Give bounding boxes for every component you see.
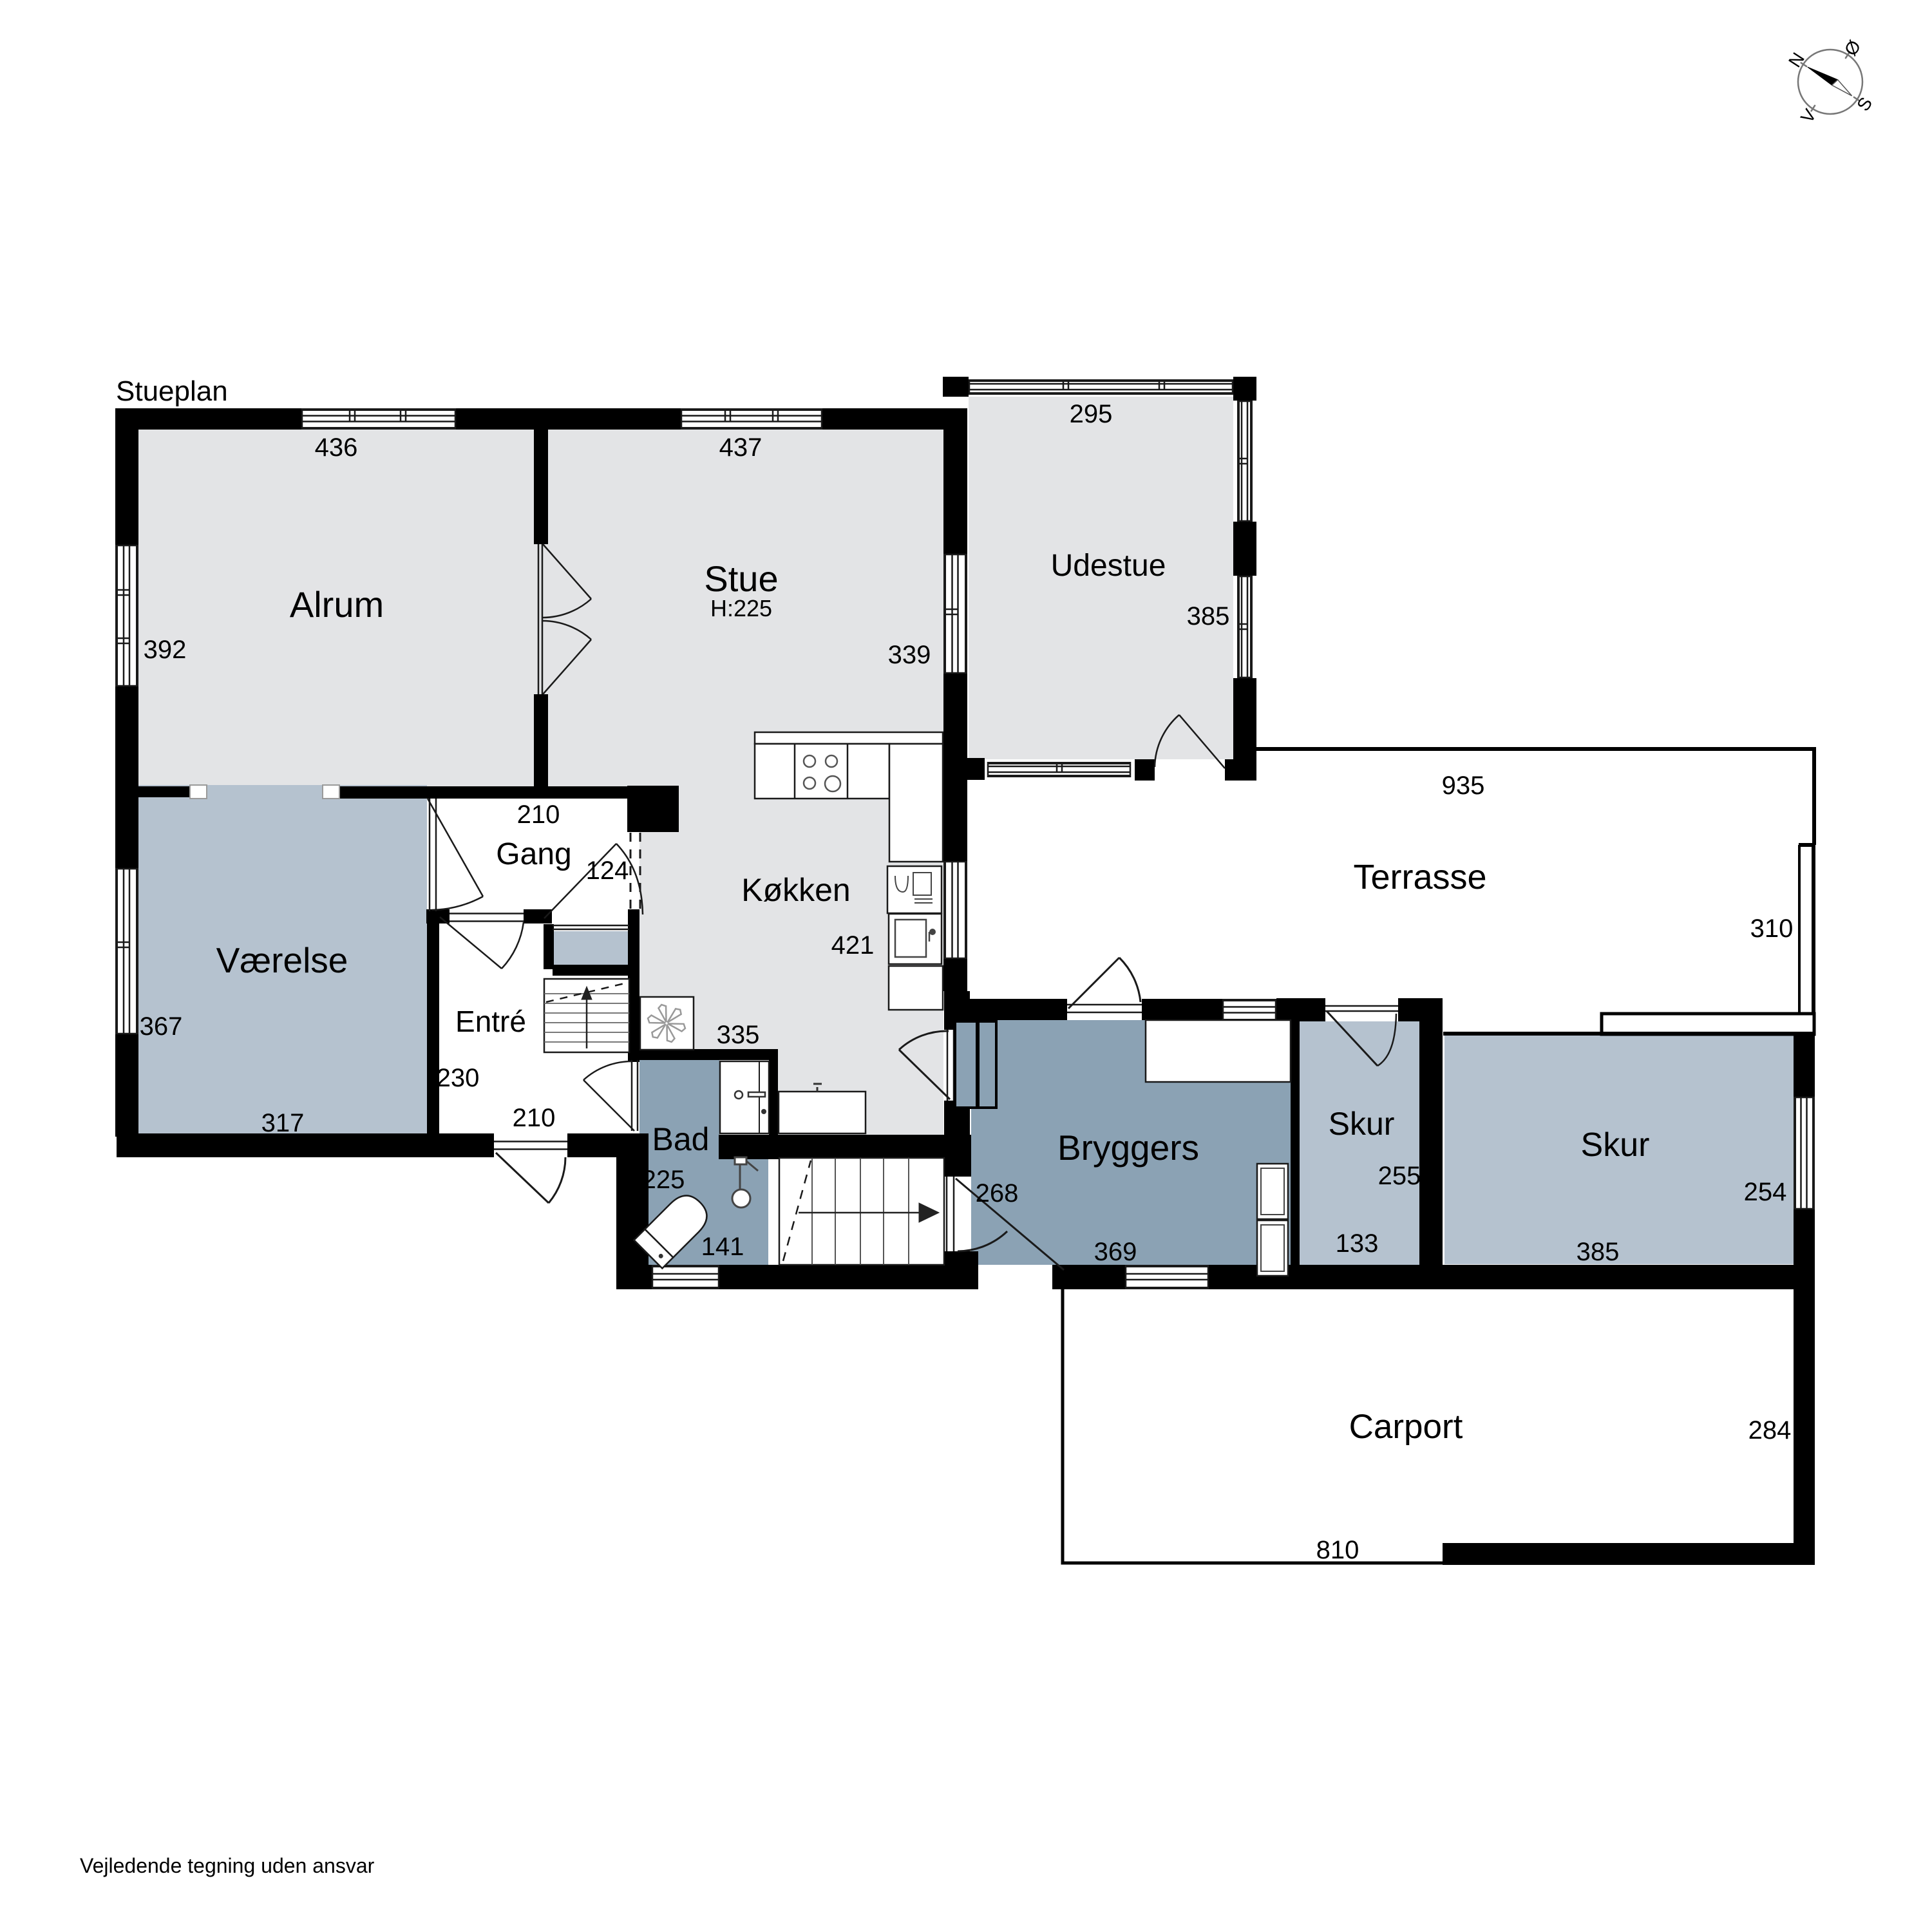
svg-text:317: 317 — [261, 1109, 305, 1137]
svg-text:254: 254 — [1744, 1178, 1787, 1206]
svg-text:210: 210 — [513, 1104, 556, 1132]
svg-text:268: 268 — [976, 1179, 1019, 1207]
svg-text:Alrum: Alrum — [290, 584, 384, 625]
svg-text:Carport: Carport — [1349, 1408, 1463, 1446]
svg-text:367: 367 — [140, 1012, 183, 1041]
svg-text:Entré: Entré — [455, 1005, 526, 1038]
svg-text:284: 284 — [1748, 1416, 1792, 1444]
svg-text:133: 133 — [1336, 1229, 1379, 1258]
svg-text:339: 339 — [888, 641, 931, 669]
svg-text:Gang: Gang — [496, 837, 571, 871]
svg-text:H:225: H:225 — [710, 595, 772, 621]
svg-text:Stue: Stue — [704, 558, 778, 599]
svg-text:225: 225 — [642, 1166, 685, 1194]
svg-text:335: 335 — [717, 1021, 760, 1049]
svg-text:436: 436 — [315, 433, 358, 462]
svg-text:Værelse: Værelse — [216, 940, 348, 980]
svg-text:Vejledende tegning uden ansvar: Vejledende tegning uden ansvar — [80, 1854, 375, 1877]
svg-text:Terrasse: Terrasse — [1353, 858, 1486, 896]
svg-text:Bryggers: Bryggers — [1057, 1128, 1199, 1168]
svg-text:295: 295 — [1070, 400, 1113, 428]
svg-text:210: 210 — [517, 800, 560, 829]
svg-text:230: 230 — [437, 1064, 480, 1092]
svg-text:124: 124 — [586, 857, 629, 885]
svg-text:310: 310 — [1750, 914, 1794, 943]
svg-text:810: 810 — [1316, 1536, 1359, 1564]
svg-text:255: 255 — [1378, 1162, 1421, 1190]
svg-text:369: 369 — [1094, 1238, 1137, 1266]
svg-text:Bad: Bad — [652, 1121, 710, 1157]
svg-text:Skur: Skur — [1581, 1126, 1650, 1164]
svg-text:421: 421 — [831, 931, 875, 960]
svg-text:385: 385 — [1187, 602, 1230, 630]
svg-text:437: 437 — [719, 433, 762, 462]
svg-text:935: 935 — [1442, 772, 1485, 800]
svg-text:Køkken: Køkken — [741, 872, 851, 908]
svg-text:Stueplan: Stueplan — [116, 375, 228, 407]
svg-text:Skur: Skur — [1329, 1106, 1395, 1142]
svg-text:392: 392 — [144, 636, 187, 664]
svg-text:385: 385 — [1577, 1238, 1620, 1266]
svg-text:141: 141 — [701, 1233, 744, 1261]
svg-text:Udestue: Udestue — [1051, 549, 1166, 583]
